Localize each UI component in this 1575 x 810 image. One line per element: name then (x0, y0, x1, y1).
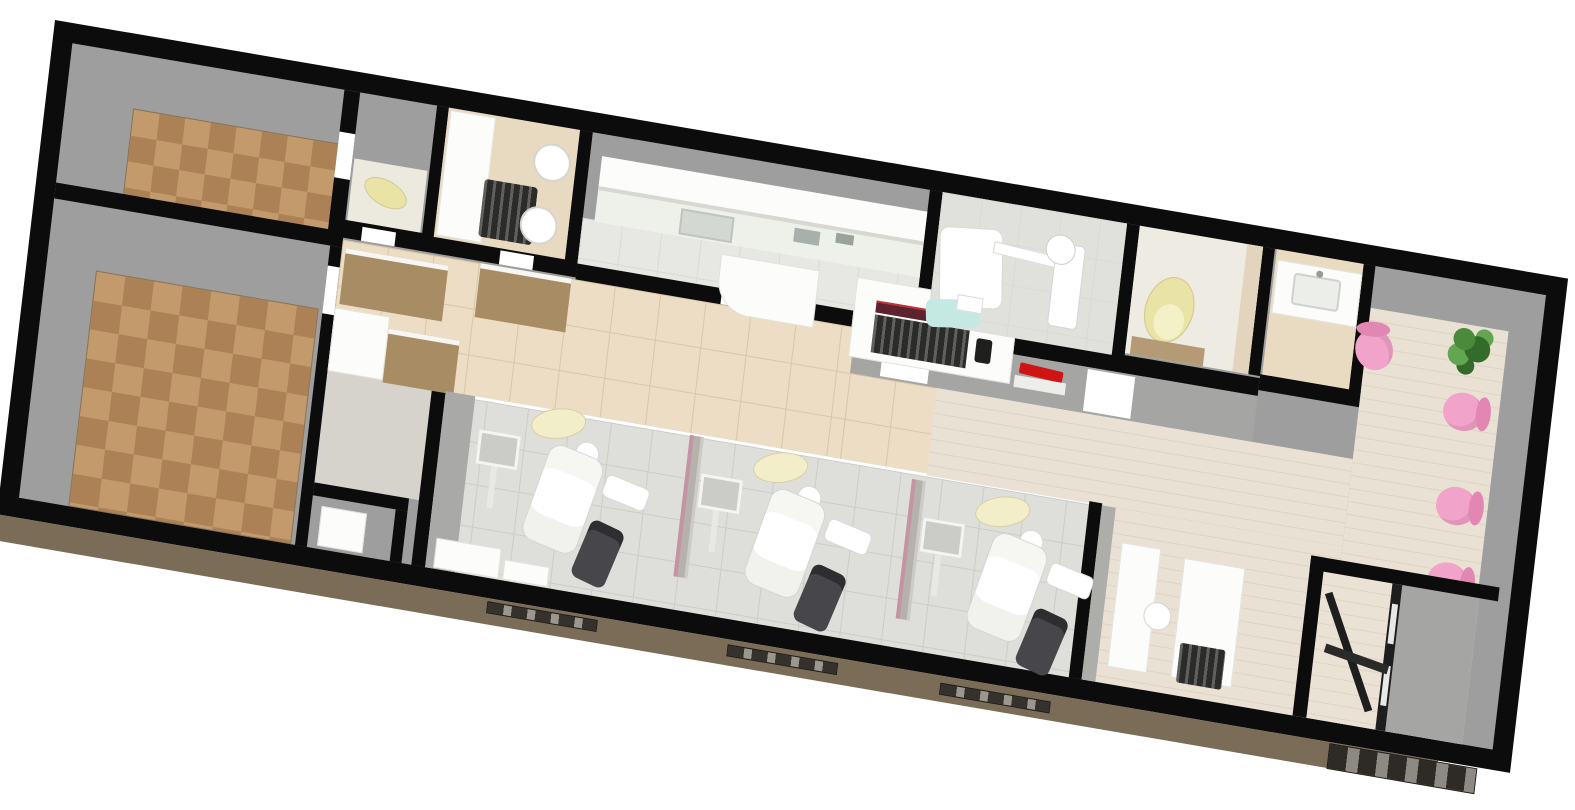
bay2-delivery-table (822, 517, 873, 557)
office-lower-left-carpet (68, 270, 318, 544)
waiting-chair (1441, 386, 1494, 440)
floorplan-canvas (0, 0, 1575, 810)
corridor-floor-east (840, 373, 941, 474)
dental-bay-2 (677, 446, 913, 650)
washer-box (317, 506, 367, 554)
sterilizer-knob (974, 338, 993, 365)
bay1-monitor (476, 429, 521, 470)
entry-exterior-mat (1326, 743, 1477, 794)
half-wall-opening-east (1083, 369, 1135, 419)
corridor-white-counter (327, 307, 390, 380)
bay3-monitor (920, 517, 965, 558)
reception-dark-equipment (1176, 643, 1226, 691)
bay1-monitor-post (486, 466, 497, 509)
waiting-chair (1433, 480, 1486, 534)
bay1-delivery-table (600, 473, 651, 513)
bay3-monitor-post (931, 554, 942, 597)
corridor-branch-floor (314, 371, 432, 500)
bay2-monitor-post (708, 510, 719, 553)
clinic-building (0, 20, 1568, 773)
bay2-monitor (698, 473, 743, 514)
waiting-chair (1351, 320, 1397, 371)
bay3-delivery-table (1044, 561, 1095, 601)
